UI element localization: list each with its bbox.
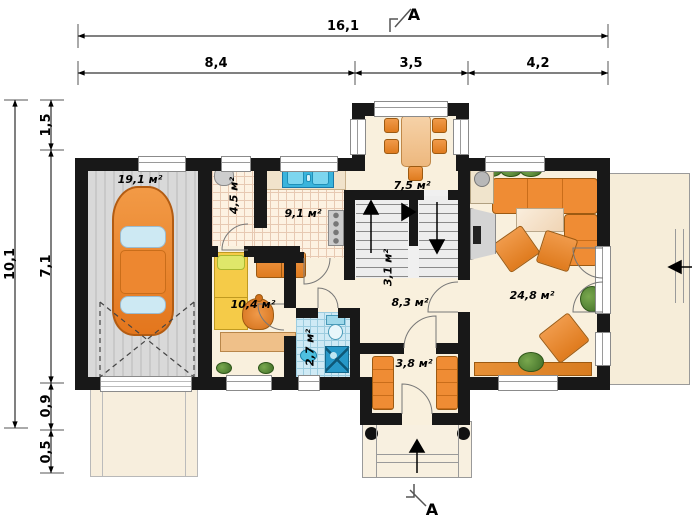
section-label-bottom: A	[426, 500, 439, 516]
wall-living-left-top	[458, 168, 470, 280]
window-bathroom-bottom	[298, 375, 320, 391]
driveway-edge	[185, 388, 186, 476]
terrace	[598, 173, 690, 385]
wall-left	[75, 158, 88, 390]
terrace-step-line	[683, 229, 684, 303]
wall-bedroom-right-a	[284, 246, 296, 308]
dimension-left-segments: 1,5 7,1 0,9 0,5	[39, 100, 64, 473]
dim-label-seg-3: 4,2	[526, 56, 549, 71]
dining-chair	[432, 118, 447, 133]
porch-inner-line	[376, 422, 377, 477]
dining-chair	[432, 139, 447, 154]
window-bay-right	[453, 119, 469, 155]
section-mark-bottom: A	[406, 484, 439, 516]
window-kitchen-top	[280, 156, 338, 172]
wall-entrybay-bottom-l	[360, 413, 402, 425]
car-rear-window	[120, 296, 166, 314]
wall-entrybay-bottom-r	[432, 413, 470, 425]
wall-stair-left	[344, 195, 355, 280]
window-living-right	[595, 332, 611, 366]
window-garage-top	[138, 156, 186, 172]
car	[112, 186, 174, 336]
wall-pantry-right	[254, 168, 267, 228]
wall-bedroom-right-b	[284, 336, 296, 390]
wall-garage-divider	[198, 158, 212, 390]
bed-pillow	[217, 255, 245, 270]
wall-vestibule-top-b	[436, 343, 470, 354]
window-bay-left	[350, 119, 366, 155]
wall-kitchen-bottom	[254, 252, 304, 263]
driveway	[90, 388, 198, 477]
sink-faucet	[306, 174, 311, 182]
sink-basin	[287, 170, 304, 185]
plant-bedroom	[258, 362, 274, 374]
window-bedroom-bottom	[226, 375, 272, 391]
lamp	[474, 171, 490, 187]
dim-label-seg-1: 8,4	[204, 56, 227, 71]
dimension-left-total: 10,1	[3, 100, 28, 428]
tv-screen	[473, 226, 481, 244]
porch-step	[377, 454, 458, 455]
window-bay-top	[374, 101, 448, 117]
dim-label-seg-left-1: 1,5	[39, 113, 54, 136]
dimension-top-segments: 8,4 3,5 4,2	[78, 56, 608, 85]
toilet-bowl	[328, 324, 343, 340]
dim-label-seg-left-4: 0,5	[39, 440, 54, 463]
dim-label-seg-left-2: 7,1	[39, 254, 54, 277]
room-label-hall: 8,3 м²	[380, 296, 440, 309]
shower-drain	[330, 352, 337, 359]
room-label-stairs: 3,1 м²	[382, 243, 395, 293]
dimension-top-total: 16,1	[78, 19, 608, 48]
window-living-bottom	[498, 375, 558, 391]
dining-chair	[384, 139, 399, 154]
wall-stair-divider	[409, 196, 418, 246]
dim-label-total-height: 10,1	[3, 248, 18, 280]
section-mark-top: A	[390, 5, 421, 32]
porch-step	[377, 462, 458, 463]
terrace-door-opening	[595, 246, 611, 314]
room-label-living: 24,8 м²	[502, 289, 562, 302]
tv-unit	[470, 208, 496, 260]
room-label-kitchen: 9,1 м²	[273, 207, 333, 220]
entry-porch	[362, 421, 472, 478]
porch-inner-line	[458, 422, 459, 477]
wall-bedroom-top-a	[210, 246, 218, 257]
plant-bedroom	[216, 362, 232, 374]
dim-label-seg-left-3: 0,9	[39, 394, 54, 417]
room-label-bedroom: 10,4 м²	[223, 298, 283, 311]
stair-flight-down	[419, 196, 461, 278]
car-windshield	[120, 226, 166, 248]
plant-sideboard	[518, 352, 544, 372]
dining-table	[401, 115, 431, 167]
sink-basin	[312, 170, 329, 185]
wall-right-upper	[597, 158, 610, 248]
shower	[325, 346, 349, 373]
dim-label-seg-2: 3,5	[399, 56, 422, 71]
terrace-step-line	[675, 229, 676, 303]
dim-label-total-width: 16,1	[327, 19, 359, 34]
car-roof	[120, 250, 166, 294]
driveway-edge	[102, 388, 103, 476]
room-label-pantry: 4,5 м²	[228, 171, 241, 221]
wall-vestibule-top-a	[360, 343, 404, 354]
dining-chair	[384, 118, 399, 133]
wall-bathroom-right	[350, 308, 360, 390]
room-label-bathroom: 2,7 м²	[304, 323, 317, 373]
window-living-top	[485, 156, 545, 172]
room-label-dining: 7,5 м²	[382, 179, 442, 192]
wall-bathroom-top-a	[296, 308, 318, 318]
garage-door-opening	[100, 376, 192, 392]
floor-plan: 16,1 8,4 3,5 4,2 10,1 1,5	[0, 0, 700, 516]
room-label-garage: 19,1 м²	[110, 173, 170, 186]
section-label-top: A	[408, 5, 421, 24]
room-label-vestibule: 3,8 м²	[384, 357, 444, 370]
